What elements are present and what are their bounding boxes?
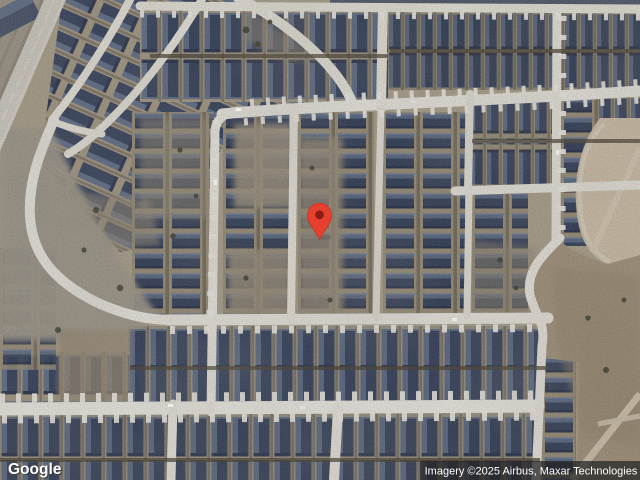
svg-text:Imagery ©2025 Airbus, Maxar Te: Imagery ©2025 Airbus, Maxar Technologies xyxy=(425,466,638,478)
svg-text:Google: Google xyxy=(8,461,62,478)
